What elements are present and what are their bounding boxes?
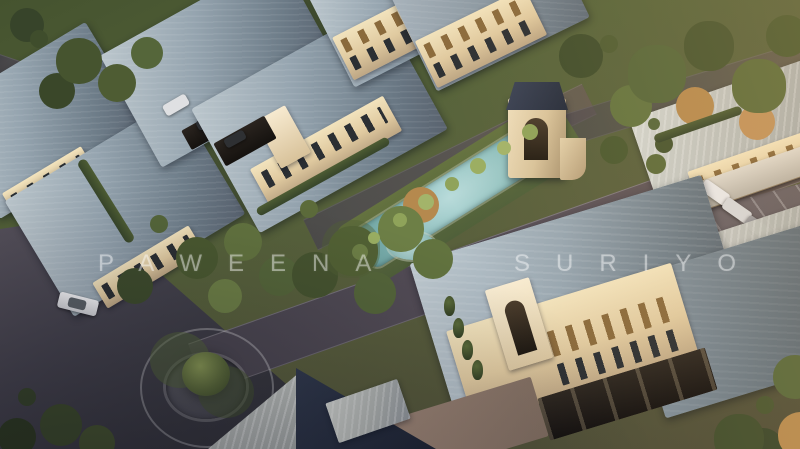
roundabout-feature-tree [182, 352, 230, 396]
tree-cluster-center [300, 200, 318, 218]
gate-wing-wall [560, 138, 586, 180]
tree-cluster-top-left [30, 30, 48, 48]
cypress-row-mansion-4 [472, 360, 483, 380]
aerial-estate-render: PAWEENA SURIYO [0, 0, 800, 449]
gate-tower-arch [524, 118, 548, 160]
cypress-row-mansion-2 [453, 318, 464, 338]
garden-pergola [636, 55, 670, 93]
fountain-pool [388, 232, 436, 260]
tree-row-canal-poplars [368, 232, 380, 244]
gate-tower-roof [506, 82, 568, 110]
tree-cluster-bottom-left [18, 388, 36, 406]
cypress-row-mansion-1 [444, 296, 455, 316]
tree-cluster-right-mid [648, 118, 660, 130]
cypress-row-mansion-3 [462, 340, 473, 360]
tree-cluster-bottom-right [756, 396, 774, 414]
tree-cluster-top-right [600, 35, 618, 53]
tree-cluster-mid-left [150, 215, 168, 233]
